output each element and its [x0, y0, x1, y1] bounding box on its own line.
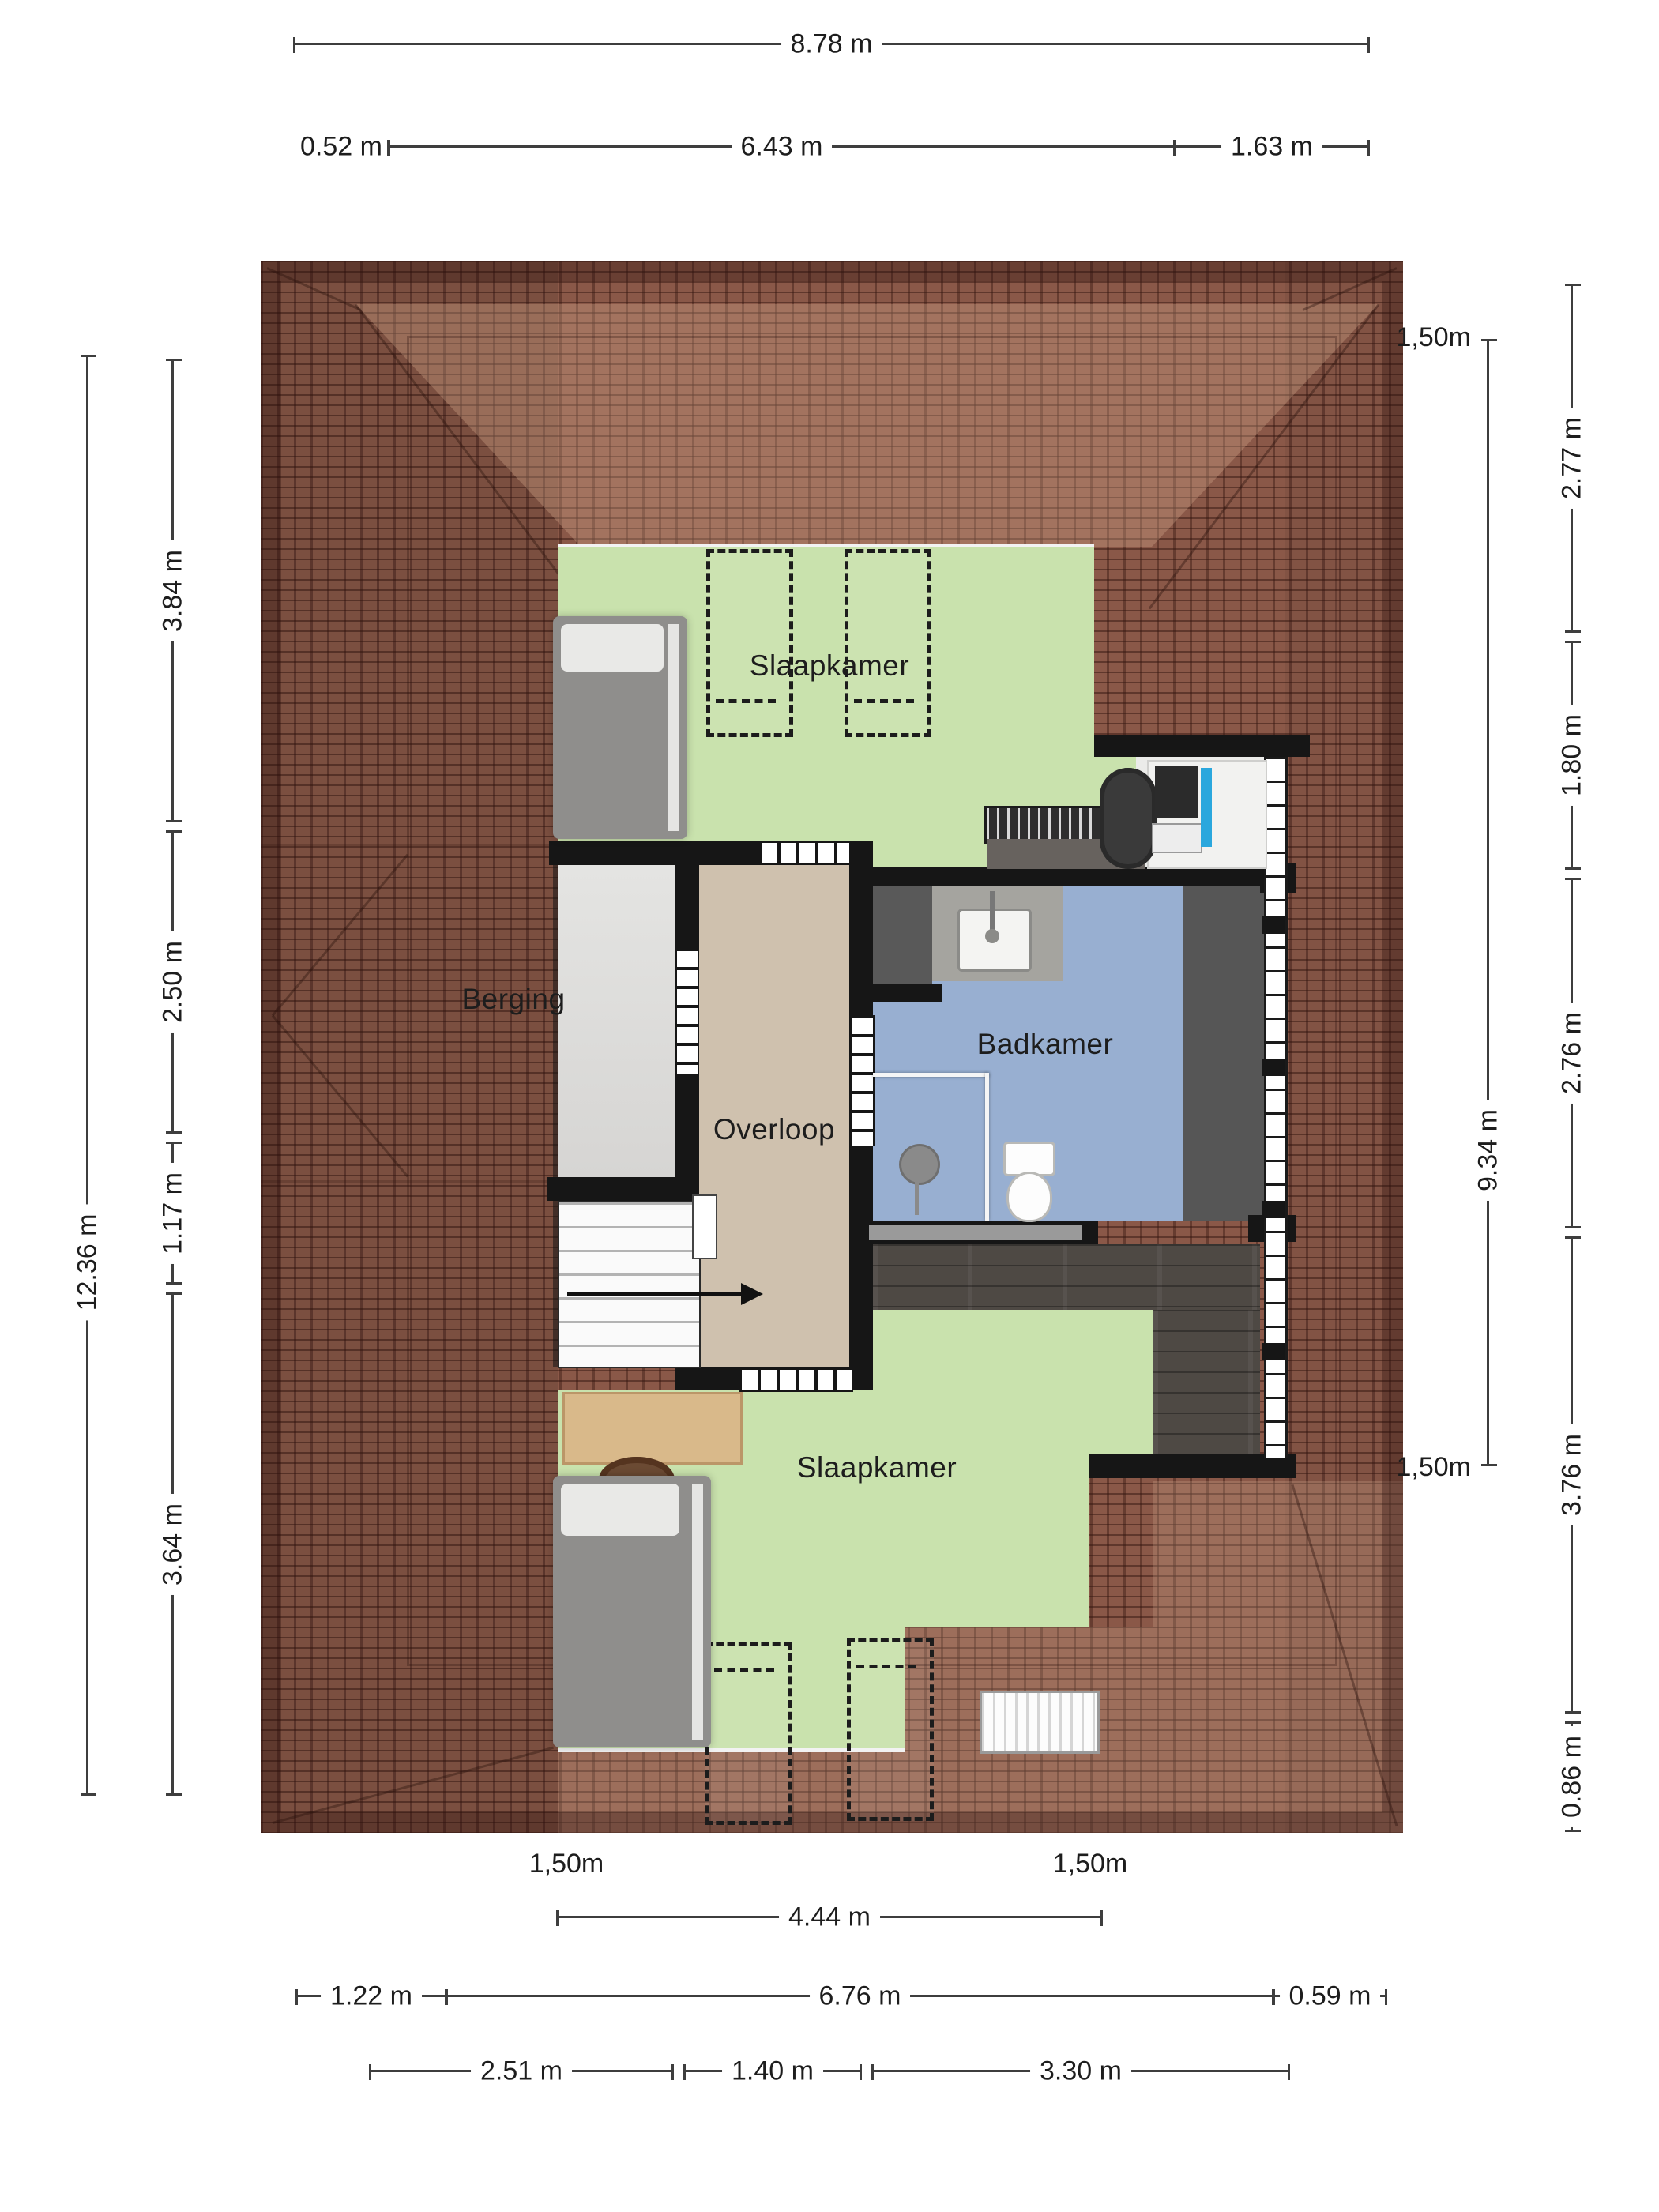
dim-label: 3.84 m	[158, 540, 189, 641]
roof-window-icon	[706, 549, 793, 737]
room-label-bedroom-bottom: Slaapkamer	[797, 1451, 957, 1484]
monitor-icon	[1155, 766, 1198, 818]
bathroom-dark-wall-band	[1183, 886, 1266, 1221]
wall-bedroombottom-right	[1089, 1454, 1296, 1478]
bed-pillow	[561, 624, 664, 671]
roof-window-sill	[716, 699, 776, 703]
stairs-direction-arrowhead-icon	[741, 1283, 763, 1305]
floor-wardrobe-wood	[873, 1244, 1260, 1311]
shower-head-stem	[915, 1179, 919, 1215]
room-label-storage: Berging	[461, 983, 565, 1016]
dim-label: 6.76 m	[810, 1981, 911, 2012]
roof-window-sill	[856, 1665, 916, 1668]
roof-window-sill	[854, 699, 914, 703]
window-separator	[1262, 1201, 1285, 1218]
dim-label: 3.64 m	[158, 1494, 189, 1595]
roof-dormer-edge	[261, 1180, 558, 1183]
bed-pillow	[561, 1484, 679, 1536]
toilet-bowl	[1006, 1172, 1052, 1222]
room-label-bedroom-top: Slaapkamer	[750, 649, 909, 683]
stairs-direction-arrow-icon	[567, 1292, 743, 1296]
dim-bottom2-seg-1: 1.22 m	[296, 1995, 446, 1997]
dim-bottom3-seg-2: 1.40 m	[684, 2070, 861, 2072]
kneewall-edge-top	[558, 544, 1094, 547]
floor-storage	[558, 865, 675, 1177]
monitor-screen	[1201, 768, 1212, 847]
dim-left-seg-1: 3.84 m	[171, 359, 174, 822]
dim-bottom2-seg-2: 6.76 m	[446, 1995, 1273, 1997]
floor-wardrobe-wood	[1153, 1310, 1260, 1456]
dim-label: 2.51 m	[471, 2056, 572, 2087]
faucet-icon	[990, 891, 995, 932]
dim-label: 1.80 m	[1557, 705, 1588, 806]
dim-label: 1.22 m	[321, 1981, 422, 2012]
dim-label: 12.36 m	[73, 1204, 103, 1320]
dim-top-seg-3: 1.63 m	[1175, 145, 1369, 148]
door-opening-bedroombottom	[739, 1368, 853, 1392]
bed-sheet-fold	[668, 624, 679, 831]
staircase	[558, 1201, 701, 1368]
shower-glass-panel	[873, 1073, 989, 1077]
wall-bathroom-niche	[849, 984, 942, 1002]
headroom-marker-bottom-right: 1,50m	[1335, 1452, 1471, 1483]
door-opening-bathroom	[851, 1015, 875, 1145]
shower-glass-panel	[985, 1073, 989, 1221]
door-opening-storage	[675, 948, 699, 1074]
headroom-marker-bottom-left: 1,50m	[503, 1849, 630, 1879]
headroom-marker-bottom-mid: 1,50m	[1027, 1849, 1153, 1879]
dim-top-seg-1: 0.52 m	[294, 145, 389, 148]
window-separator	[1262, 1343, 1285, 1360]
dim-right-seg-1: 2.77 m	[1571, 284, 1573, 632]
bathroom-niche-block	[873, 886, 932, 984]
roof-dormer-edge	[261, 844, 558, 846]
room-label-landing: Overloop	[713, 1113, 835, 1146]
dim-bottom3-seg-1: 2.51 m	[370, 2070, 673, 2072]
dim-label: 1.17 m	[158, 1163, 189, 1264]
wall-desknook-top	[1094, 735, 1310, 757]
window-separator	[1262, 1059, 1285, 1076]
dim-right-seg-4: 3.76 m	[1571, 1237, 1573, 1713]
dim-label: 9.34 m	[1473, 1100, 1504, 1201]
dim-label: 2.76 m	[1557, 1003, 1588, 1104]
radiator-icon	[980, 1691, 1100, 1754]
wall-bathroom-top	[863, 867, 1296, 886]
faucet-knob	[985, 929, 999, 943]
dim-right-seg-2: 1.80 m	[1571, 641, 1573, 869]
dim-label: 1.63 m	[1221, 132, 1322, 163]
dim-headroom-line: 9.34 m	[1487, 340, 1489, 1465]
dim-label: 0.52 m	[291, 132, 392, 163]
window-separator	[1262, 916, 1285, 934]
shower-head-icon	[899, 1144, 940, 1185]
dim-label: 0.86 m	[1557, 1726, 1588, 1827]
dim-bottom3-seg-3: 3.30 m	[872, 2070, 1289, 2072]
dim-right-seg-5: 0.86 m	[1571, 1722, 1573, 1831]
dim-left-seg-2: 2.50 m	[171, 831, 174, 1133]
dim-label: 2.77 m	[1557, 408, 1588, 509]
floorplan-canvas: Slaapkamer Berging Overloop Badkamer Sla…	[0, 0, 1659, 2212]
desk-icon	[562, 1392, 743, 1465]
radiator-wardrobe	[869, 1225, 1082, 1240]
dim-label: 8.78 m	[781, 29, 882, 60]
dim-top-seg-2: 6.43 m	[389, 145, 1175, 148]
roof-window-icon	[845, 549, 931, 737]
wall-storage-bottom	[547, 1177, 699, 1201]
dim-bottom-width: 4.44 m	[557, 1916, 1102, 1918]
dim-left-total: 12.36 m	[86, 355, 88, 1795]
bed-sheet-fold	[692, 1484, 703, 1740]
dim-label: 3.76 m	[1557, 1424, 1588, 1525]
dim-label: 6.43 m	[732, 132, 833, 163]
dim-left-seg-4: 3.64 m	[171, 1293, 174, 1795]
keyboard-icon	[1152, 823, 1202, 853]
stair-handrail	[692, 1194, 717, 1259]
room-label-bathroom: Badkamer	[977, 1028, 1114, 1061]
dim-label: 3.30 m	[1030, 2056, 1131, 2087]
dim-label: 0.59 m	[1280, 1981, 1381, 2012]
dim-label: 4.44 m	[779, 1902, 880, 1933]
dim-label: 1.40 m	[722, 2056, 823, 2087]
headroom-marker-top-right: 1,50m	[1335, 322, 1471, 353]
dim-right-seg-3: 2.76 m	[1571, 878, 1573, 1228]
dim-left-seg-3: 1.17 m	[171, 1142, 174, 1284]
dim-top-total: 8.78 m	[294, 43, 1369, 45]
dim-bottom2-seg-3: 0.59 m	[1273, 1995, 1386, 1997]
roof-window-sill	[714, 1668, 774, 1672]
dim-label: 2.50 m	[158, 931, 189, 1033]
office-chair-icon	[1100, 768, 1157, 869]
